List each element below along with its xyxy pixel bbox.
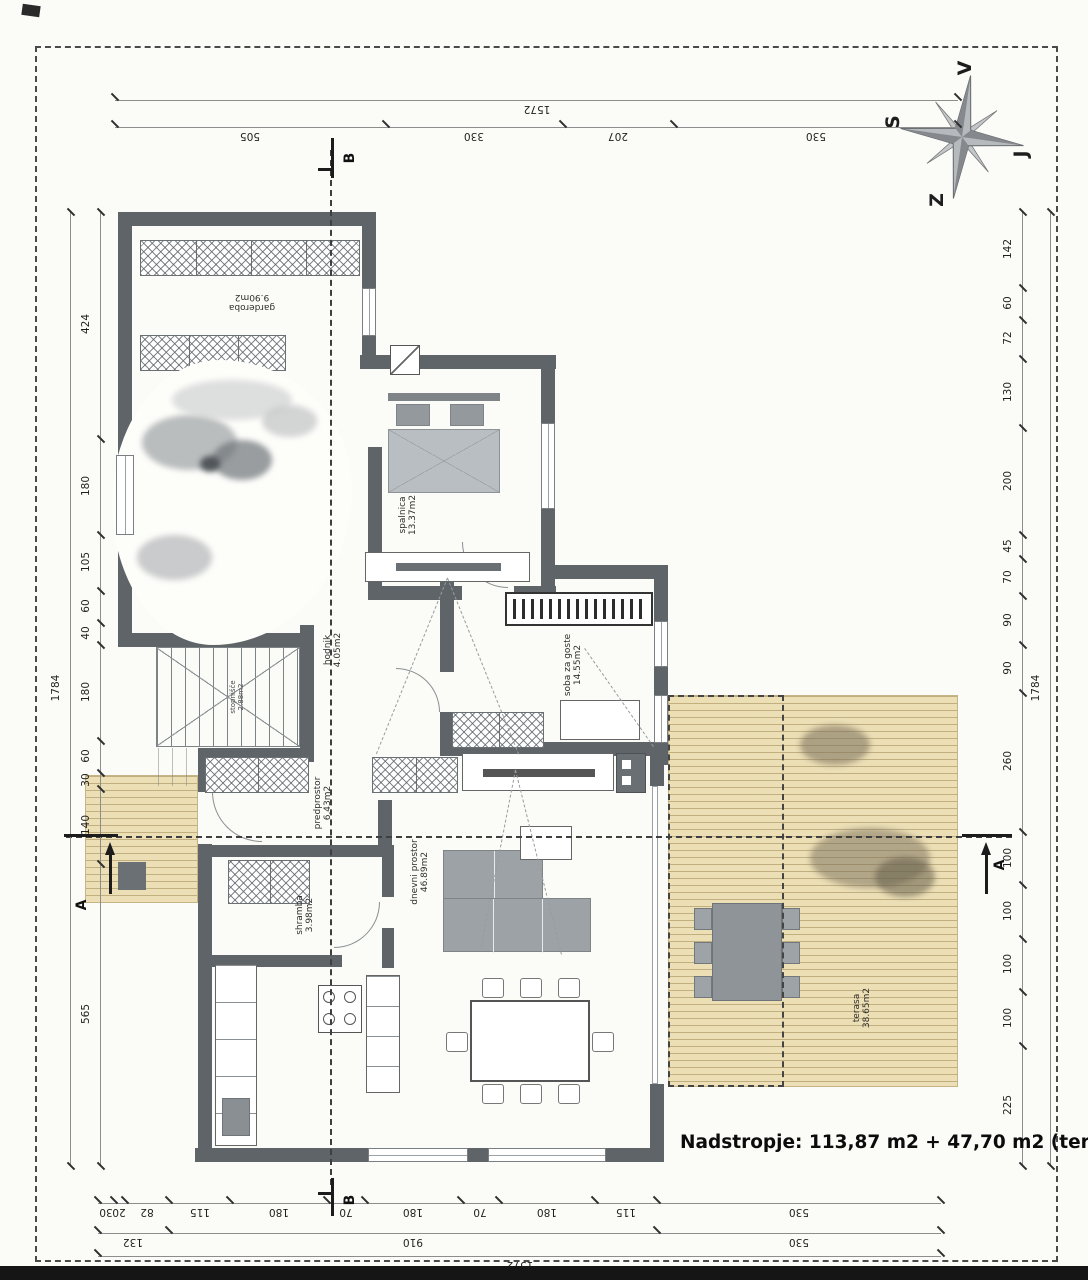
- dimension-value: 1784: [1030, 665, 1042, 711]
- section-marker-b-bottom-tick: [318, 1192, 333, 1195]
- dimension-value: 100: [1002, 888, 1014, 934]
- compass-south-label: J: [1010, 150, 1032, 157]
- room-label-garderoba: garderoba9.90m2: [229, 292, 275, 312]
- sofa: [443, 898, 591, 952]
- dimension-value: 180: [80, 463, 92, 509]
- coffee-table: [520, 826, 572, 860]
- dimension-value: 100: [1002, 941, 1014, 987]
- dimension-value: 130: [1002, 369, 1014, 415]
- dimension-line: [1050, 212, 1051, 1166]
- dimension-value: 70: [457, 1206, 503, 1218]
- dimension-value: 115: [177, 1206, 223, 1218]
- dimension-value: 82: [124, 1206, 170, 1218]
- sideboard: [462, 753, 614, 791]
- dimension-value: 180: [390, 1206, 436, 1218]
- area-summary: Nadstropje: 113,87 m2 + 47,70 m2 (terasa…: [680, 1132, 1088, 1153]
- dim-left-total: 1784: [70, 212, 72, 1166]
- wall: [382, 845, 394, 897]
- floor-plan-sheet: B B A A garderoba9.90m2 spalnica13.37m2 …: [0, 0, 1088, 1280]
- section-label-b: B: [342, 1195, 358, 1206]
- section-label-b: B: [342, 153, 358, 164]
- dimension-line: [115, 100, 958, 101]
- section-marker-b-top-tick: [318, 168, 333, 171]
- section-label-a: A: [992, 860, 1008, 871]
- chair: [558, 978, 580, 998]
- scan-edge-strip: [0, 1266, 1088, 1280]
- dimension-value: 530: [776, 1206, 822, 1218]
- dimension-value: 207: [595, 130, 641, 142]
- deck-planter: [118, 862, 146, 890]
- dimension-value: 530: [776, 1236, 822, 1248]
- room-label-soba-za-goste: soba za goste14.55m2: [563, 634, 583, 696]
- section-marker-a-left-stem: [109, 854, 112, 894]
- guest-desk: [560, 700, 640, 740]
- fireplace-unit: [616, 753, 646, 793]
- scan-smudge: [800, 725, 870, 765]
- compass-west-label: Z: [926, 193, 948, 207]
- dimension-value: 1572: [514, 103, 560, 115]
- chair: [520, 1084, 542, 1104]
- stove: [318, 985, 362, 1033]
- dimension-line: [1022, 212, 1023, 1166]
- section-marker-b-bottom: [331, 1178, 334, 1216]
- dimension-line: [70, 212, 71, 1166]
- compass-east-label: V: [954, 61, 976, 76]
- room-label-terasa: terasa38.65m2: [852, 988, 872, 1028]
- terrace-chair: [782, 908, 800, 930]
- wall: [440, 580, 454, 672]
- dimension-value: 505: [227, 130, 273, 142]
- wall: [212, 845, 394, 857]
- dimension-value: 180: [524, 1206, 570, 1218]
- dimension-value: 424: [80, 301, 92, 347]
- wall: [541, 355, 555, 425]
- dimension-line: [98, 1256, 941, 1257]
- terrace-chair: [782, 942, 800, 964]
- dimension-value: 70: [323, 1206, 369, 1218]
- dimension-value: 530: [793, 130, 839, 142]
- chair: [520, 978, 542, 998]
- wall: [362, 212, 376, 290]
- dimension-value: 100: [1002, 995, 1014, 1041]
- dimension-value: 1784: [50, 665, 62, 711]
- dimension-value: 105: [80, 539, 92, 585]
- bed: [388, 393, 500, 493]
- decorative-frieze: [505, 592, 653, 626]
- window: [654, 695, 668, 743]
- window: [541, 423, 555, 509]
- dimension-value: 132: [110, 1236, 156, 1248]
- dining-table: [470, 1000, 590, 1082]
- cabinet-hatch: [205, 757, 309, 793]
- chair: [482, 978, 504, 998]
- dim-right-total: 1784: [1050, 212, 1052, 1166]
- dimension-value: 40: [80, 610, 92, 656]
- dimension-line: [98, 1233, 941, 1234]
- window: [654, 621, 668, 667]
- chair: [558, 1084, 580, 1104]
- chair: [446, 1032, 468, 1052]
- dimension-value: 260: [1002, 738, 1014, 784]
- dimension-line: [115, 127, 958, 128]
- wall: [650, 742, 664, 786]
- room-label-stopnisce: stopnišče2.88m2: [229, 680, 245, 713]
- wall: [654, 579, 668, 621]
- window: [368, 1148, 468, 1162]
- dimension-value: 140: [80, 802, 92, 848]
- dimension-value: 180: [256, 1206, 302, 1218]
- staircase: [156, 647, 300, 747]
- room-label-predprostor: predprostor6.43m2: [313, 777, 333, 830]
- glass-wall: [652, 786, 658, 1084]
- terrace-dashed-zone: [668, 695, 784, 1087]
- section-marker-b-top: [331, 138, 334, 178]
- dimension-value: 565: [80, 991, 92, 1037]
- cabinet-hatch: [140, 240, 360, 276]
- terrace-chair: [782, 976, 800, 998]
- room-label-hodnik: hodnik4.05m2: [323, 633, 343, 668]
- dimension-value: 115: [603, 1206, 649, 1218]
- window: [488, 1148, 606, 1162]
- dimension-value: 30: [80, 757, 92, 803]
- chair: [482, 1084, 504, 1104]
- wall: [300, 625, 314, 757]
- room-label-spalnica: spalnica13.37m2: [398, 495, 418, 535]
- dimension-value: 72: [1002, 315, 1014, 361]
- dimension-value: 90: [1002, 597, 1014, 643]
- dimension-value: 330: [451, 130, 497, 142]
- kitchen-cabinets: [366, 975, 400, 1093]
- dimension-value: 142: [1002, 226, 1014, 272]
- wall: [382, 928, 394, 968]
- dimension-line: [98, 1203, 941, 1204]
- dimension-value: 910: [390, 1236, 436, 1248]
- dimension-line: [100, 212, 101, 1166]
- kitchen-sink: [222, 1098, 250, 1136]
- section-line-b: [330, 150, 332, 1185]
- room-label-shramba: shramba3.98m2: [295, 895, 315, 935]
- cabinet-hatch: [452, 712, 544, 748]
- chimney-vent: [390, 345, 420, 375]
- dimension-value: 200: [1002, 458, 1014, 504]
- section-marker-a-right-bar: [962, 834, 1012, 837]
- cabinet-hatch: [372, 757, 458, 793]
- room-label-dnevni-prostor: dnevni prostor46.89m2: [410, 839, 430, 905]
- scan-mark: [21, 4, 40, 17]
- dimension-value: 100: [1002, 835, 1014, 881]
- dimension-value: 180: [80, 669, 92, 715]
- section-marker-a-left-bar: [64, 834, 118, 837]
- scan-smudge: [875, 857, 935, 897]
- section-marker-a-right-stem: [985, 854, 988, 894]
- wall: [654, 667, 668, 695]
- dimension-value: 90: [1002, 645, 1014, 691]
- chair: [592, 1032, 614, 1052]
- section-line-a: [66, 836, 1012, 838]
- dim-right-segments: 142607213020045709090260100100100100225: [1022, 212, 1024, 1166]
- dimension-value: 70: [1002, 554, 1014, 600]
- wall: [555, 565, 668, 579]
- window: [116, 455, 134, 535]
- window: [362, 288, 376, 336]
- dimension-value: 225: [1002, 1082, 1014, 1128]
- wall: [650, 1084, 664, 1162]
- dim-left-segments: 42418010560401806030140565: [100, 212, 102, 1166]
- compass-rose: [889, 64, 1036, 211]
- section-label-a: A: [74, 900, 90, 911]
- wall: [118, 212, 376, 226]
